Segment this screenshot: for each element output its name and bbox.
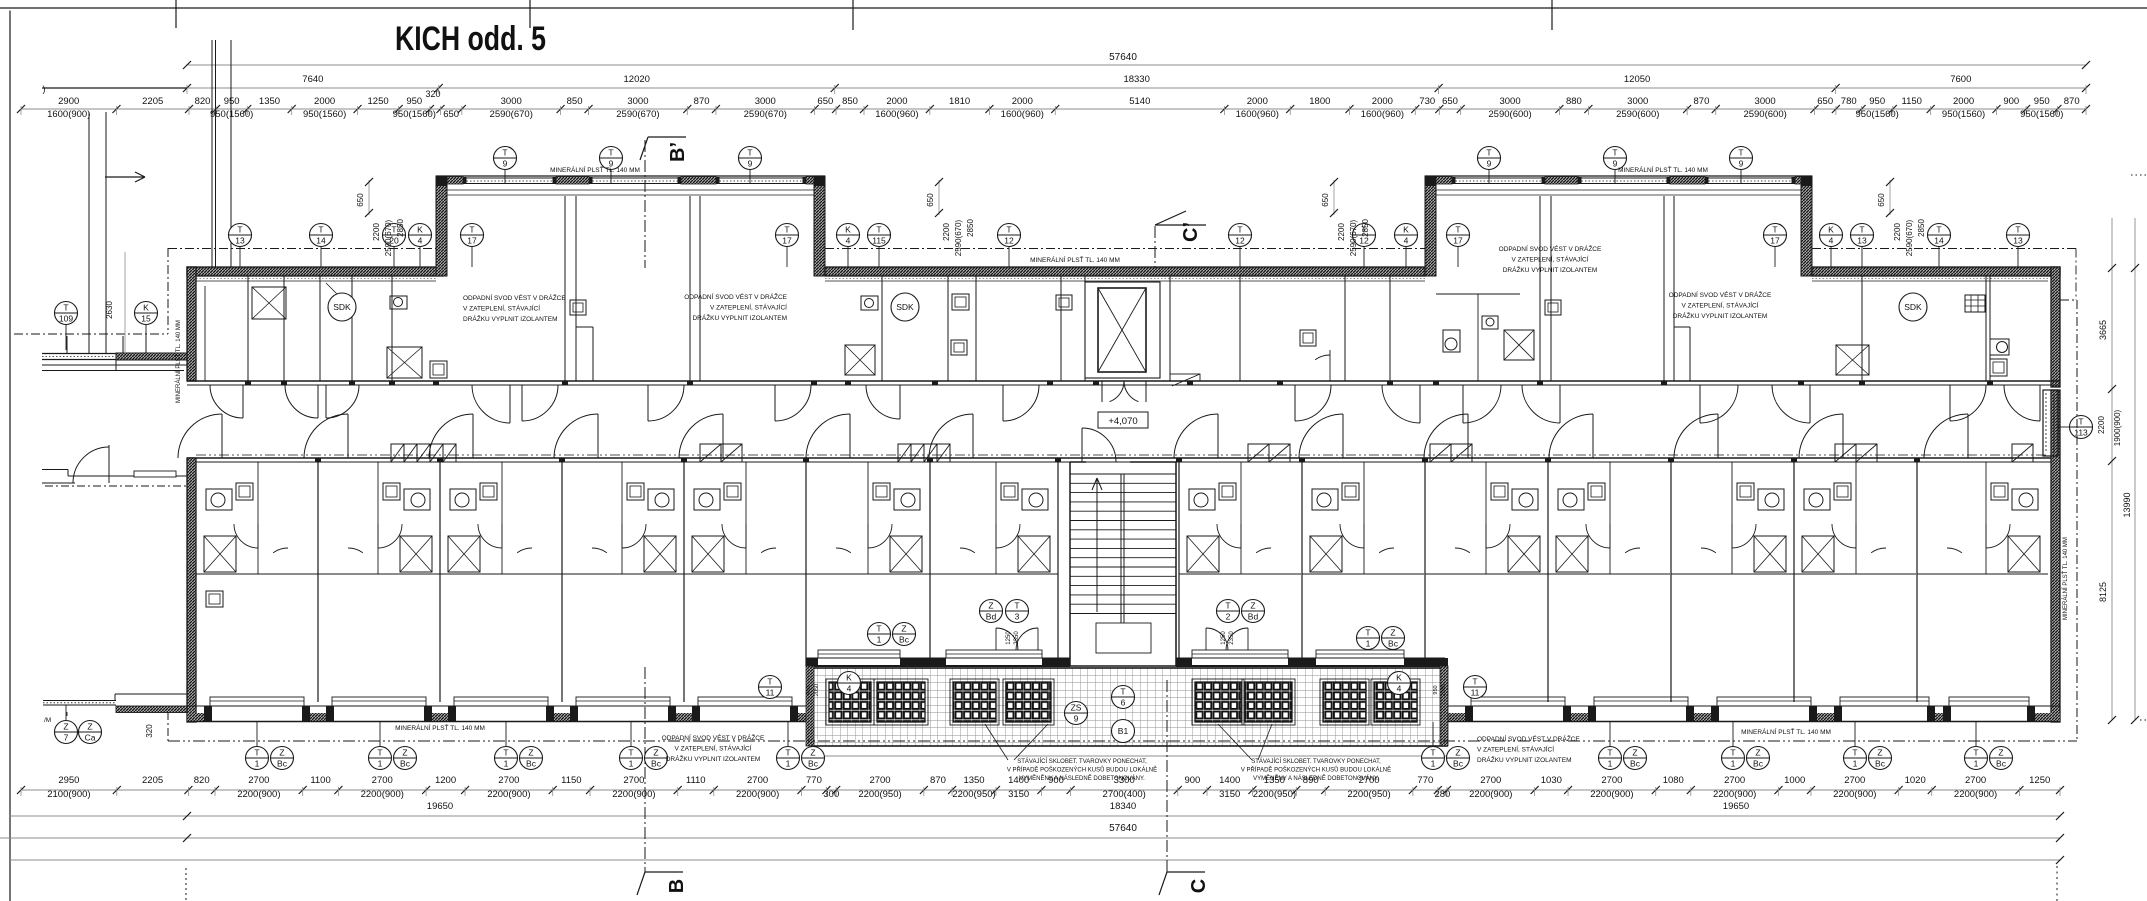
svg-text:2205: 2205 — [142, 775, 163, 786]
svg-text:KICH odd. 5: KICH odd. 5 — [395, 20, 546, 58]
svg-text:T: T — [63, 303, 68, 313]
svg-text:MINERÁLNÍ PLSŤ TL. 140 MM: MINERÁLNÍ PLSŤ TL. 140 MM — [2061, 537, 2069, 620]
svg-text:2200(900): 2200(900) — [1833, 789, 1876, 800]
svg-text:1250: 1250 — [1221, 631, 1227, 645]
svg-text:T: T — [1120, 687, 1125, 697]
svg-text:780: 780 — [1841, 96, 1857, 107]
svg-text:+4,070: +4,070 — [1108, 416, 1137, 427]
svg-text:3000: 3000 — [1755, 96, 1776, 107]
svg-text:Z: Z — [1632, 748, 1637, 758]
svg-text:T: T — [2078, 417, 2083, 427]
svg-text:17: 17 — [782, 236, 792, 246]
svg-text:7640: 7640 — [302, 74, 323, 85]
svg-text:2100(900): 2100(900) — [47, 789, 90, 800]
svg-text:950(1560): 950(1560) — [1942, 109, 1985, 120]
svg-text:T: T — [1455, 225, 1460, 235]
svg-text:K: K — [845, 225, 851, 235]
svg-text:2050: 2050 — [1441, 684, 1447, 696]
svg-text:11: 11 — [766, 688, 775, 698]
svg-text:ODPADNÍ SVOD VÉST V DRÁŽCE: ODPADNÍ SVOD VÉST V DRÁŽCE — [1669, 290, 1772, 299]
svg-text:4: 4 — [1397, 684, 1402, 694]
svg-text:7: 7 — [64, 733, 69, 743]
svg-text:2700: 2700 — [1601, 775, 1622, 786]
svg-text:900: 900 — [2003, 96, 2019, 107]
svg-text:Z: Z — [901, 624, 906, 634]
svg-text:Bc: Bc — [1875, 759, 1886, 769]
svg-text:T: T — [318, 225, 323, 235]
svg-text:ODPADNÍ SVOD VÉST V DRÁŽCE: ODPADNÍ SVOD VÉST V DRÁŽCE — [662, 733, 765, 742]
svg-text:14: 14 — [1934, 236, 1944, 246]
svg-text:MINERÁLNÍ PLSŤ TL. 140 MM: MINERÁLNÍ PLSŤ TL. 140 MM — [174, 320, 182, 403]
svg-text:Bc: Bc — [1630, 759, 1641, 769]
svg-text:870: 870 — [2064, 96, 2080, 107]
svg-text:T: T — [747, 148, 752, 158]
svg-text:2205: 2205 — [142, 96, 163, 107]
svg-text:650: 650 — [1877, 193, 1886, 207]
svg-text:8125: 8125 — [2098, 582, 2108, 602]
svg-text:T: T — [1365, 628, 1370, 638]
svg-text:Z: Z — [402, 748, 407, 758]
svg-text:12050: 12050 — [1624, 74, 1650, 85]
svg-text:T: T — [1730, 748, 1735, 758]
svg-text:1600(960): 1600(960) — [1361, 109, 1404, 120]
svg-text:2050: 2050 — [814, 684, 820, 696]
svg-text:1020: 1020 — [1905, 775, 1926, 786]
svg-text:2350: 2350 — [1014, 631, 1020, 645]
svg-text:2000: 2000 — [1012, 96, 1033, 107]
svg-text:2700: 2700 — [1480, 775, 1501, 786]
svg-text:2200(900): 2200(900) — [1590, 789, 1633, 800]
svg-text:1: 1 — [1974, 759, 1979, 769]
svg-text:2590(600): 2590(600) — [1743, 109, 1786, 120]
svg-text:VYMĚNĚNY A NÁSLEDNĚ DOBETONOVÁ: VYMĚNĚNY A NÁSLEDNĚ DOBETONOVÁNY. — [1253, 774, 1379, 782]
svg-text:2200: 2200 — [1893, 223, 1902, 241]
svg-text:2200: 2200 — [942, 223, 951, 241]
svg-text:870: 870 — [694, 96, 710, 107]
svg-text:2350: 2350 — [1229, 631, 1235, 645]
svg-text:1: 1 — [504, 759, 509, 769]
svg-text:V PŘÍPADĚ POŠKOZENÝCH KUSŮ BUD: V PŘÍPADĚ POŠKOZENÝCH KUSŮ BUDOU LOKÁLNĚ — [1241, 766, 1391, 774]
svg-text:2200(900): 2200(900) — [612, 789, 655, 800]
svg-text:1600(960): 1600(960) — [875, 109, 918, 120]
svg-text:1: 1 — [1731, 759, 1736, 769]
svg-text:2850: 2850 — [396, 219, 405, 237]
svg-text:2200(900): 2200(900) — [736, 789, 779, 800]
svg-text:DRÁŽKU VYPLNIT IZOLANTEM: DRÁŽKU VYPLNIT IZOLANTEM — [692, 313, 787, 322]
svg-text:3000: 3000 — [1627, 96, 1648, 107]
svg-text:13: 13 — [235, 236, 245, 246]
svg-text:1900(900): 1900(900) — [2113, 409, 2122, 446]
svg-text:2700: 2700 — [869, 775, 890, 786]
svg-text:V ZATEPLENÍ, STÁVAJÍCÍ: V ZATEPLENÍ, STÁVAJÍCÍ — [1681, 301, 1758, 310]
svg-text:870: 870 — [930, 775, 946, 786]
svg-text:4: 4 — [847, 684, 852, 694]
svg-text:113: 113 — [2074, 428, 2088, 438]
svg-text:950: 950 — [406, 96, 422, 107]
svg-text:320: 320 — [145, 724, 154, 738]
svg-text:B1: B1 — [1118, 726, 1129, 736]
svg-text:1000: 1000 — [1784, 775, 1805, 786]
svg-text:7600: 7600 — [1950, 74, 1971, 85]
svg-text:650: 650 — [443, 109, 459, 120]
svg-text:14: 14 — [316, 236, 326, 246]
svg-text:MINERÁLNÍ PLSŤ TL. 140 MM: MINERÁLNÍ PLSŤ TL. 140 MM — [395, 723, 485, 732]
svg-text:870: 870 — [1694, 96, 1710, 107]
svg-text:T: T — [237, 225, 242, 235]
svg-text:2590(670): 2590(670) — [744, 109, 787, 120]
svg-text:2700: 2700 — [498, 775, 519, 786]
svg-text:900: 900 — [1184, 775, 1200, 786]
svg-text:T: T — [469, 225, 474, 235]
svg-text:2000: 2000 — [886, 96, 907, 107]
svg-text:650: 650 — [1321, 193, 1330, 207]
svg-text:1600(960): 1600(960) — [1001, 109, 1044, 120]
svg-text:950: 950 — [1433, 685, 1439, 694]
svg-text:MINERÁLNÍ PLSŤ TL. 140 MM: MINERÁLNÍ PLSŤ TL. 140 MM — [1618, 165, 1708, 174]
svg-text:T: T — [1486, 148, 1491, 158]
svg-text:Z: Z — [1455, 748, 1460, 758]
svg-text:2200: 2200 — [1337, 223, 1346, 241]
svg-text:Z: Z — [810, 748, 815, 758]
svg-text:2700: 2700 — [1844, 775, 1865, 786]
svg-text:1250: 1250 — [1006, 631, 1012, 645]
svg-text:950: 950 — [1869, 96, 1885, 107]
svg-text:T: T — [1852, 748, 1857, 758]
svg-text:280: 280 — [1434, 789, 1450, 800]
svg-text:1100: 1100 — [310, 775, 330, 786]
svg-text:V ZATEPLENÍ, STÁVAJÍCÍ: V ZATEPLENÍ, STÁVAJÍCÍ — [1477, 745, 1554, 754]
svg-text:T: T — [1225, 601, 1230, 611]
svg-text:770: 770 — [806, 775, 822, 786]
svg-text:3150: 3150 — [1008, 789, 1029, 800]
svg-text:2950: 2950 — [58, 775, 79, 786]
svg-text:2200(950): 2200(950) — [1347, 789, 1390, 800]
svg-text:T: T — [608, 148, 613, 158]
svg-text:Z: Z — [63, 722, 68, 732]
svg-text:Z: Z — [988, 601, 993, 611]
svg-text:9: 9 — [1487, 159, 1492, 169]
svg-text:2590(670): 2590(670) — [490, 109, 533, 120]
svg-text:ODPADNÍ SVOD VÉST V DRÁŽCE: ODPADNÍ SVOD VÉST V DRÁŽCE — [463, 293, 566, 302]
svg-text:Bc: Bc — [1996, 759, 2007, 769]
svg-text:K: K — [1396, 673, 1402, 683]
svg-text:1250: 1250 — [2029, 775, 2050, 786]
svg-text:1: 1 — [1608, 759, 1613, 769]
svg-text:2590(600): 2590(600) — [1488, 109, 1531, 120]
svg-text:Z: Z — [528, 748, 533, 758]
svg-text:3000: 3000 — [627, 96, 648, 107]
svg-text:T: T — [767, 677, 772, 687]
svg-text:1200: 1200 — [435, 775, 456, 786]
svg-text:2850: 2850 — [1361, 219, 1370, 237]
svg-text:1110: 1110 — [686, 775, 706, 786]
svg-text:MINERÁLNÍ PLSŤ TL. 140 MM: MINERÁLNÍ PLSŤ TL. 140 MM — [550, 165, 640, 174]
svg-text:3000: 3000 — [755, 96, 776, 107]
svg-text:13990: 13990 — [2122, 492, 2132, 517]
svg-text:17: 17 — [467, 236, 477, 246]
svg-text:T: T — [876, 225, 881, 235]
svg-text:T: T — [1014, 601, 1019, 611]
svg-text:Ca: Ca — [85, 733, 96, 743]
svg-text:SDK: SDK — [1904, 302, 1922, 312]
svg-text:Bd: Bd — [1248, 612, 1259, 622]
svg-text:2200(900): 2200(900) — [237, 789, 280, 800]
svg-text:T: T — [1772, 225, 1777, 235]
svg-text:K: K — [417, 225, 423, 235]
svg-text:DRÁŽKU VYPLNIT IZOLANTEM: DRÁŽKU VYPLNIT IZOLANTEM — [463, 314, 558, 323]
svg-text:57640: 57640 — [1109, 823, 1137, 834]
svg-text:VYMĚNĚNY A NÁSLEDNĚ DOBETONOVÁ: VYMĚNĚNY A NÁSLEDNĚ DOBETONOVÁNY. — [1019, 774, 1145, 782]
svg-text:950(1560): 950(1560) — [210, 109, 253, 120]
svg-text:5140: 5140 — [1129, 96, 1150, 107]
svg-text:Bc: Bc — [1453, 759, 1464, 769]
svg-text:DRÁŽKU VYPLNIT IZOLANTEM: DRÁŽKU VYPLNIT IZOLANTEM — [1477, 755, 1572, 764]
svg-text:1: 1 — [1853, 759, 1858, 769]
svg-text:9: 9 — [748, 159, 753, 169]
svg-text:T: T — [1237, 225, 1242, 235]
svg-text:3: 3 — [1015, 612, 1020, 622]
svg-text:2590(670): 2590(670) — [384, 219, 393, 256]
svg-text:Z: Z — [1877, 748, 1882, 758]
svg-text:T: T — [1607, 748, 1612, 758]
svg-text:1600(900): 1600(900) — [47, 109, 90, 120]
svg-text:3000: 3000 — [501, 96, 522, 107]
svg-text:Z: Z — [1998, 748, 2003, 758]
svg-text:17: 17 — [1770, 236, 1780, 246]
svg-text:T: T — [377, 748, 382, 758]
svg-text:9: 9 — [1613, 159, 1618, 169]
svg-text:57640: 57640 — [1109, 52, 1137, 63]
svg-text:T: T — [784, 225, 789, 235]
svg-text:2850: 2850 — [966, 219, 975, 237]
svg-text:Z: Z — [87, 722, 92, 732]
svg-text:SDK: SDK — [896, 302, 914, 312]
svg-text:2700: 2700 — [1724, 775, 1745, 786]
svg-text:1250: 1250 — [368, 96, 389, 107]
svg-text:19650: 19650 — [427, 801, 453, 812]
svg-text:C’: C’ — [1180, 222, 1202, 242]
svg-text:Bc: Bc — [400, 759, 411, 769]
svg-text:1: 1 — [1431, 759, 1436, 769]
svg-text:650: 650 — [1817, 96, 1833, 107]
svg-text:Bc: Bc — [1388, 639, 1399, 649]
svg-text:DRÁŽKU VYPLNIT IZOLANTEM: DRÁŽKU VYPLNIT IZOLANTEM — [1673, 311, 1768, 320]
svg-text:2200(900): 2200(900) — [1469, 789, 1512, 800]
svg-text:T: T — [1973, 748, 1978, 758]
svg-text:2590(670): 2590(670) — [1905, 219, 1914, 256]
svg-text:ODPADNÍ SVOD VÉST V DRÁŽCE: ODPADNÍ SVOD VÉST V DRÁŽCE — [1477, 734, 1580, 743]
svg-text:2000: 2000 — [1953, 96, 1974, 107]
svg-text:1800: 1800 — [1309, 96, 1330, 107]
svg-text:3000: 3000 — [1499, 96, 1520, 107]
svg-text:11: 11 — [1471, 688, 1480, 698]
svg-text:MINERÁLNÍ PLSŤ TL. 140 MM: MINERÁLNÍ PLSŤ TL. 140 MM — [1030, 255, 1120, 264]
svg-text:950(1560): 950(1560) — [2020, 109, 2063, 120]
svg-text:3665: 3665 — [2098, 320, 2108, 340]
svg-text:Bc: Bc — [808, 759, 819, 769]
svg-text:1400: 1400 — [1219, 775, 1240, 786]
svg-text:950: 950 — [224, 96, 240, 107]
svg-text:V ZATEPLENÍ, STÁVAJÍCÍ: V ZATEPLENÍ, STÁVAJÍCÍ — [1511, 255, 1588, 264]
svg-text:18340: 18340 — [1110, 801, 1136, 812]
svg-text:B: B — [666, 879, 688, 893]
svg-text:1810: 1810 — [949, 96, 970, 107]
svg-text:950(1560): 950(1560) — [393, 109, 436, 120]
svg-text:1600(960): 1600(960) — [1236, 109, 1279, 120]
svg-text:ODPADNÍ SVOD VÉST V DRÁŽCE: ODPADNÍ SVOD VÉST V DRÁŽCE — [684, 292, 787, 301]
svg-text:115: 115 — [872, 236, 886, 246]
svg-text:2700: 2700 — [372, 775, 393, 786]
svg-text:6: 6 — [1121, 698, 1126, 708]
svg-text:V ZATEPLENÍ, STÁVAJÍCÍ: V ZATEPLENÍ, STÁVAJÍCÍ — [710, 303, 787, 312]
svg-text:880: 880 — [1566, 96, 1582, 107]
svg-text:730: 730 — [1419, 96, 1435, 107]
svg-text:STÁVAJÍCÍ SKLOBET. TVAROVKY PO: STÁVAJÍCÍ SKLOBET. TVAROVKY PONECHAT, — [1017, 758, 1147, 765]
svg-text:2200(900): 2200(900) — [361, 789, 404, 800]
svg-text:Z: Z — [279, 748, 284, 758]
svg-text:4: 4 — [846, 236, 851, 246]
svg-text:2700: 2700 — [623, 775, 644, 786]
svg-text:SDK: SDK — [333, 302, 351, 312]
svg-text:850: 850 — [567, 96, 583, 107]
svg-text:Bc: Bc — [1753, 759, 1764, 769]
svg-text:1: 1 — [255, 759, 260, 769]
svg-text:T: T — [785, 748, 790, 758]
svg-text:109: 109 — [59, 314, 73, 324]
svg-text:2200: 2200 — [2097, 416, 2106, 434]
svg-text:950: 950 — [806, 685, 812, 694]
svg-text:V ZATEPLENÍ, STÁVAJÍCÍ: V ZATEPLENÍ, STÁVAJÍCÍ — [674, 744, 751, 753]
svg-text:B’: B’ — [667, 142, 689, 162]
svg-text:T: T — [503, 748, 508, 758]
svg-text:T: T — [254, 748, 259, 758]
svg-text:1: 1 — [786, 759, 791, 769]
svg-text:T: T — [628, 748, 633, 758]
svg-text:1350: 1350 — [259, 96, 280, 107]
svg-text:2200(900): 2200(900) — [1954, 789, 1997, 800]
svg-text:2590(670): 2590(670) — [954, 219, 963, 256]
svg-text:K: K — [846, 673, 852, 683]
svg-text:4: 4 — [1404, 236, 1409, 246]
svg-text:ODPADNÍ SVOD VÉST V DRÁŽCE: ODPADNÍ SVOD VÉST V DRÁŽCE — [1499, 244, 1602, 253]
svg-text:1: 1 — [877, 635, 882, 645]
svg-text:Bc: Bc — [651, 759, 662, 769]
svg-text:Z: Z — [1755, 748, 1760, 758]
svg-text:12: 12 — [1235, 236, 1245, 246]
svg-text:4: 4 — [418, 236, 423, 246]
svg-text:17: 17 — [1453, 236, 1463, 246]
svg-text:12020: 12020 — [624, 74, 650, 85]
svg-text:2700: 2700 — [248, 775, 269, 786]
svg-text:2000: 2000 — [1372, 96, 1393, 107]
svg-text:2630: 2630 — [105, 301, 114, 319]
svg-text:650: 650 — [926, 193, 935, 207]
svg-text:2700: 2700 — [747, 775, 768, 786]
svg-text:2000: 2000 — [314, 96, 335, 107]
svg-text:Bd: Bd — [986, 612, 997, 622]
svg-text:1350: 1350 — [963, 775, 984, 786]
svg-text:13: 13 — [1857, 236, 1867, 246]
svg-text:3150: 3150 — [1219, 789, 1240, 800]
svg-text:650: 650 — [1442, 96, 1458, 107]
svg-text:DRÁŽKU VYPLNIT IZOLANTEM: DRÁŽKU VYPLNIT IZOLANTEM — [1503, 265, 1598, 274]
svg-text:2200: 2200 — [372, 223, 381, 241]
svg-text:4: 4 — [1829, 236, 1834, 246]
svg-text:C: C — [1188, 879, 1210, 893]
svg-text:T: T — [1738, 148, 1743, 158]
svg-text:300: 300 — [823, 789, 839, 800]
svg-text:2200(900): 2200(900) — [1713, 789, 1756, 800]
svg-text:T: T — [1936, 225, 1941, 235]
svg-text:950(1560): 950(1560) — [1856, 109, 1899, 120]
svg-text:K: K — [1403, 225, 1409, 235]
svg-text:V PŘÍPADĚ POŠKOZENÝCH KUSŮ BUD: V PŘÍPADĚ POŠKOZENÝCH KUSŮ BUDOU LOKÁLNĚ — [1007, 766, 1157, 774]
svg-text:12: 12 — [1004, 236, 1014, 246]
svg-text:820: 820 — [195, 96, 211, 107]
svg-text:Z: Z — [1390, 628, 1395, 638]
svg-text:950(1560): 950(1560) — [303, 109, 346, 120]
svg-text:T: T — [2015, 225, 2020, 235]
svg-text:650: 650 — [356, 193, 365, 207]
svg-text:9: 9 — [1074, 714, 1079, 724]
svg-text:Z: Z — [653, 748, 658, 758]
svg-text:950: 950 — [2034, 96, 2050, 107]
svg-text:ZS: ZS — [1071, 703, 1082, 713]
svg-text:Z: Z — [1250, 601, 1255, 611]
svg-text:MINERÁLNÍ PLSŤ TL. 140 MM: MINERÁLNÍ PLSŤ TL. 140 MM — [1741, 727, 1831, 736]
svg-text:2700: 2700 — [1965, 775, 1986, 786]
svg-text:): ) — [43, 84, 46, 94]
svg-text:1080: 1080 — [1663, 775, 1684, 786]
svg-text:820: 820 — [194, 775, 210, 786]
svg-text:650: 650 — [817, 96, 833, 107]
svg-text:T: T — [1430, 748, 1435, 758]
svg-text:1150: 1150 — [561, 775, 581, 786]
svg-text:K: K — [143, 303, 149, 313]
svg-text:T: T — [1859, 225, 1864, 235]
svg-text:T: T — [876, 624, 881, 634]
svg-text:T: T — [1006, 225, 1011, 235]
svg-text:2700(400): 2700(400) — [1103, 789, 1146, 800]
svg-text:2000: 2000 — [1247, 96, 1268, 107]
svg-text:1030: 1030 — [1541, 775, 1562, 786]
svg-text:1: 1 — [629, 759, 634, 769]
svg-text:2200(950): 2200(950) — [1253, 789, 1296, 800]
svg-text:/M: /M — [44, 717, 51, 724]
svg-text:2200(950): 2200(950) — [952, 789, 995, 800]
svg-text:1: 1 — [378, 759, 383, 769]
svg-text:T: T — [1612, 148, 1617, 158]
svg-text:1150: 1150 — [1902, 96, 1922, 107]
svg-text:2590(600): 2590(600) — [1616, 109, 1659, 120]
svg-text:Bc: Bc — [526, 759, 537, 769]
svg-text:T: T — [502, 148, 507, 158]
svg-text:19650: 19650 — [1723, 801, 1749, 812]
svg-text:850: 850 — [842, 96, 858, 107]
svg-text:13: 13 — [2013, 236, 2023, 246]
svg-text:15: 15 — [141, 314, 151, 324]
svg-text:2590(670): 2590(670) — [1349, 219, 1358, 256]
svg-text:2850: 2850 — [1917, 219, 1926, 237]
svg-text:320: 320 — [425, 89, 440, 99]
svg-text:2900: 2900 — [58, 96, 79, 107]
svg-text:2590(670): 2590(670) — [616, 109, 659, 120]
svg-text:DRÁŽKU VYPLNIT IZOLANTEM: DRÁŽKU VYPLNIT IZOLANTEM — [666, 754, 761, 763]
svg-text:V ZATEPLENÍ, STÁVAJÍCÍ: V ZATEPLENÍ, STÁVAJÍCÍ — [463, 304, 540, 313]
svg-text:STÁVAJÍCÍ SKLOBET. TVAROVKY PO: STÁVAJÍCÍ SKLOBET. TVAROVKY PONECHAT, — [1251, 758, 1381, 765]
svg-text:1: 1 — [1366, 639, 1371, 649]
svg-text:Bc: Bc — [899, 635, 910, 645]
